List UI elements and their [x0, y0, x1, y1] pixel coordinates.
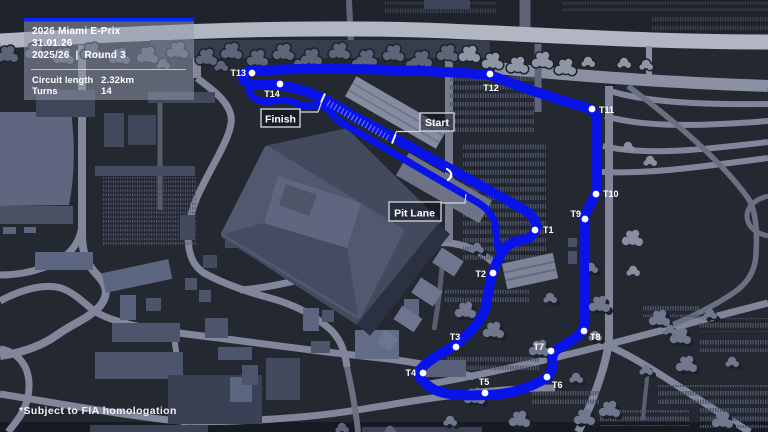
svg-text:T14: T14	[264, 89, 280, 99]
svg-text:*Subject to FIA homologation: *Subject to FIA homologation	[19, 405, 177, 417]
svg-text:T1: T1	[543, 225, 554, 235]
svg-text:T10: T10	[603, 189, 619, 199]
svg-text:T7: T7	[533, 342, 544, 352]
svg-text:T6: T6	[552, 380, 563, 390]
svg-text:Pit Lane: Pit Lane	[394, 208, 435, 220]
svg-text:T11: T11	[599, 105, 614, 115]
svg-text:2025/26 | Round 3: 2025/26 | Round 3	[32, 50, 126, 61]
svg-text:T12: T12	[483, 83, 499, 93]
svg-text:14: 14	[101, 86, 112, 97]
svg-text:31.01.26: 31.01.26	[32, 38, 73, 49]
svg-text:T4: T4	[405, 368, 416, 378]
svg-text:Start: Start	[425, 117, 449, 129]
svg-text:2026 Miami E-Prix: 2026 Miami E-Prix	[32, 26, 121, 37]
svg-text:Turns: Turns	[32, 86, 58, 96]
svg-text:Circuit length: Circuit length	[32, 75, 94, 85]
svg-text:Finish: Finish	[265, 114, 296, 126]
svg-text:T3: T3	[450, 332, 461, 342]
svg-text:T5: T5	[479, 377, 490, 387]
svg-text:T2: T2	[475, 269, 486, 279]
svg-text:T9: T9	[570, 209, 581, 219]
svg-text:T8: T8	[590, 332, 601, 342]
svg-text:2.32km: 2.32km	[101, 75, 134, 86]
svg-text:T13: T13	[230, 68, 246, 78]
